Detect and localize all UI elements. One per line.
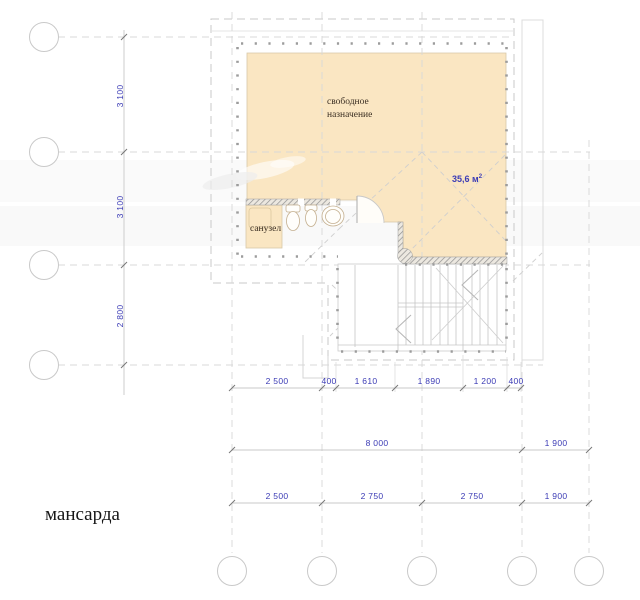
dim-label: 2 500 — [266, 491, 289, 501]
grid-circle — [30, 23, 59, 52]
grid-circle — [218, 557, 247, 586]
area-superscript: 2 — [479, 174, 482, 180]
bathroom-label: санузел — [250, 224, 281, 234]
grid-circle — [508, 557, 537, 586]
dim-label: 1 610 — [355, 376, 378, 386]
dim-label: 1 900 — [545, 438, 568, 448]
toilet-tank — [286, 205, 300, 212]
floor-title: мансарда — [45, 504, 120, 526]
main-room-area: 35,6 м2 — [452, 174, 482, 184]
dimension-extension-lines — [336, 355, 521, 392]
grid-circle — [308, 557, 337, 586]
column — [398, 249, 413, 264]
dim-label: 1 900 — [545, 491, 568, 501]
bidet-bowl — [306, 210, 317, 227]
dim-label: 1 890 — [418, 376, 441, 386]
dim-label: 2 750 — [361, 491, 384, 501]
roof-step-outline — [303, 335, 328, 378]
main-room-label: свободное назначение — [327, 96, 372, 121]
grid-circle — [30, 251, 59, 280]
dim-label: 400 — [321, 376, 336, 386]
grid-circle — [575, 557, 604, 586]
staircase — [338, 264, 506, 351]
dim-label: 2 750 — [461, 491, 484, 501]
dim-label-vertical: 3 100 — [115, 196, 125, 219]
dim-label: 400 — [508, 376, 523, 386]
grid-circle — [30, 138, 59, 167]
toilet-bowl — [287, 212, 300, 231]
dim-label-vertical: 3 100 — [115, 85, 125, 108]
grid-circle — [30, 351, 59, 380]
grid-circle — [408, 557, 437, 586]
dim-label-vertical: 2 800 — [115, 305, 125, 328]
floor-plan-page: свободное назначение 35,6 м2 санузел 3 1… — [0, 0, 640, 600]
main-room-label-line2: назначение — [327, 109, 372, 122]
dim-label: 8 000 — [366, 438, 389, 448]
dim-label: 1 200 — [474, 376, 497, 386]
main-room-label-line1: свободное — [327, 96, 372, 109]
dim-label: 2 500 — [266, 376, 289, 386]
